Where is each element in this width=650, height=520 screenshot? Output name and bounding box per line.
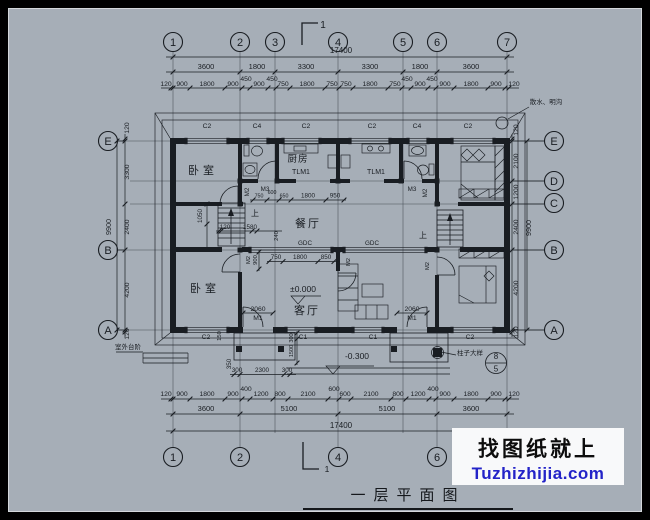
window-post	[406, 138, 409, 144]
detail-ref-sheet: 5	[494, 365, 499, 374]
window-post	[492, 327, 495, 333]
window-label: C4	[253, 123, 262, 130]
window-label: C2	[202, 334, 211, 341]
column-mark	[336, 328, 341, 333]
dim-label: 1050	[197, 209, 204, 224]
dim-label: M3	[408, 186, 417, 193]
column-mark	[238, 328, 243, 333]
grid-bubble-label: A	[104, 325, 112, 337]
dim-label: 4200	[513, 280, 520, 295]
note-apron-gutter: 散水、明沟	[530, 97, 563, 106]
dim-label: 2300	[255, 367, 270, 374]
dim-label: 900	[490, 81, 502, 88]
grid-bubble-label: E	[550, 136, 557, 148]
grid-bubble-label: 1	[170, 37, 176, 49]
dim-label: 450	[401, 76, 413, 83]
level-mark-zero: ±0.000	[290, 284, 316, 294]
dim-label: 900	[439, 81, 451, 88]
window-label: C1	[299, 334, 308, 341]
section-mark-label: 1	[325, 464, 330, 474]
sofa-short	[355, 305, 388, 319]
window-post	[226, 327, 229, 333]
dim-label: 120	[513, 326, 520, 338]
grid-bubble-label: 2	[237, 37, 243, 49]
dim-label: 900	[176, 81, 188, 88]
column-mark	[505, 139, 510, 144]
dim-label: 750	[389, 81, 401, 88]
column-mark	[238, 202, 243, 207]
stair-right	[437, 210, 463, 247]
watermark-slogan: 找图纸就上	[452, 433, 624, 463]
dim-label: 1800	[299, 81, 314, 88]
window-label: C2	[464, 123, 473, 130]
dim-label: 1200	[410, 391, 425, 398]
column-mark	[238, 179, 243, 184]
note-outdoor-steps: 室外台阶	[115, 342, 142, 351]
dim-label: 1800	[199, 391, 214, 398]
column-mark	[238, 139, 243, 144]
column-mark	[435, 179, 440, 184]
watermark: 找图纸就上 Tuzhizhijia.com	[452, 428, 624, 485]
column-mark	[336, 179, 341, 184]
window-label: C2	[466, 334, 475, 341]
column-mark	[435, 139, 440, 144]
window-label: C2	[203, 123, 212, 130]
column-mark	[171, 202, 176, 207]
appliance	[341, 155, 350, 168]
dim-label: 150	[217, 331, 223, 341]
dim-label: 4200	[124, 282, 131, 297]
window-post	[450, 138, 453, 144]
column-mark	[435, 328, 440, 333]
grid-bubble-label: 4	[335, 452, 341, 464]
window-label: C2	[302, 123, 311, 130]
dim-label: 9900	[524, 220, 533, 236]
room-living: 客厅	[294, 303, 320, 317]
column-mark	[505, 328, 510, 333]
dim-label: 900	[414, 81, 426, 88]
dim-label: 750	[255, 194, 264, 200]
section-mark-label: 1	[320, 20, 326, 31]
dim-label: 750	[277, 81, 289, 88]
stair-up-label: 上	[419, 231, 427, 240]
window-post	[246, 138, 249, 144]
dim-label: 3300	[362, 62, 379, 71]
window-label: C1	[369, 334, 378, 341]
dim-label: 900	[253, 255, 259, 265]
dim-label: 1800	[463, 391, 478, 398]
column-mark	[171, 248, 176, 253]
grid-bubble-label: 2	[237, 452, 243, 464]
dim-label: 600	[339, 391, 351, 398]
grid-bubble-label: A	[550, 325, 558, 337]
doors	[220, 161, 455, 327]
column-mark	[505, 248, 510, 253]
dim-label: GDC	[298, 240, 312, 247]
dim-label: 240	[274, 231, 280, 241]
grid-bubble-label: C	[550, 198, 558, 210]
dim-label: 300	[289, 333, 295, 342]
dim-label: 1580	[243, 224, 258, 231]
grid-bubble-label: 5	[400, 37, 406, 49]
grid-bubble-label: E	[104, 136, 111, 148]
dim-label: 800	[274, 391, 286, 398]
gutter-callout-circle	[496, 117, 508, 129]
window-post	[351, 327, 354, 333]
column-mark	[435, 248, 440, 253]
room-bedroom-1: 卧室	[188, 163, 218, 177]
dim-label: 950	[330, 193, 341, 200]
watermark-url: Tuzhizhijia.com	[452, 464, 624, 484]
grid-bubble-label: 6	[434, 452, 440, 464]
column-mark	[336, 248, 341, 253]
window-post	[281, 138, 284, 144]
dim-label: 120	[160, 391, 172, 398]
dim-label: 2100	[300, 391, 315, 398]
grid-bubble-label: B	[550, 245, 557, 257]
dim-label: M2	[422, 188, 429, 197]
dim-label: 120	[508, 391, 520, 398]
column-mark	[399, 139, 404, 144]
window-post	[226, 138, 229, 144]
dim-label: M2	[346, 258, 352, 266]
window-post	[184, 327, 187, 333]
dim-label: 1800	[199, 81, 214, 88]
column-mark	[435, 202, 440, 207]
grid-bubble-label: B	[104, 245, 111, 257]
dim-label: 1800	[463, 81, 478, 88]
column-mark	[399, 179, 404, 184]
column-mark	[275, 179, 280, 184]
dim-label: 120	[513, 124, 520, 136]
dim-label: 1800	[362, 81, 377, 88]
dim-label: 120	[124, 122, 131, 134]
dim-label: 750	[271, 254, 282, 261]
window-post	[426, 138, 429, 144]
coffee-table	[362, 284, 383, 297]
window-post	[342, 247, 345, 253]
window-post	[348, 138, 351, 144]
window-post	[492, 138, 495, 144]
window-post	[284, 327, 287, 333]
dim-label: 5100	[379, 404, 396, 413]
dim-label: M2	[246, 256, 252, 264]
window-post	[381, 327, 384, 333]
dim-label: 9900	[104, 219, 113, 235]
dim-label: 800	[392, 391, 404, 398]
dim-label: 1500	[289, 345, 295, 357]
window-post	[424, 247, 427, 253]
dim-label: 1200	[253, 391, 268, 398]
dim-label: 300	[232, 367, 243, 374]
dim-label: 900	[253, 81, 265, 88]
dim-label: 400	[240, 386, 252, 393]
appliance	[328, 155, 337, 168]
dim-label: 450	[426, 76, 438, 83]
window-post	[450, 327, 453, 333]
dim-total-top: 17400	[330, 46, 353, 55]
window-post	[266, 138, 269, 144]
window-post	[248, 247, 251, 253]
dim-label: 3600	[463, 404, 480, 413]
detail-column	[433, 348, 442, 357]
grid-bubble-label: 3	[272, 37, 278, 49]
drawing-title: 一层平面图	[303, 484, 513, 510]
grid-bubble-label: D	[550, 176, 558, 188]
level-symbol-minus	[326, 366, 374, 374]
bed-bottom-right	[459, 266, 496, 303]
dim-label: TLM1	[292, 169, 310, 176]
grid-bubble-label: 6	[434, 37, 440, 49]
dim-label: 600	[328, 386, 340, 393]
dim-label: 1800	[412, 62, 429, 71]
dim-label: 2100	[363, 391, 378, 398]
kitchen-counter	[362, 144, 390, 153]
room-kitchen: 厨房	[287, 153, 308, 165]
dim-label: 1800	[249, 62, 266, 71]
dim-label: 2400	[513, 219, 520, 234]
stair-up-label: 上	[251, 209, 259, 218]
dim-label: 120	[508, 81, 520, 88]
dim-label: 3600	[198, 62, 215, 71]
dim-total-bottom: 17400	[330, 421, 353, 430]
column-mark	[505, 202, 510, 207]
window-post	[314, 327, 317, 333]
room-bedroom-3: 卧室	[190, 281, 220, 295]
dim-label: 300	[282, 367, 293, 374]
toilet-1	[244, 145, 249, 156]
column-mark	[171, 328, 176, 333]
dim-label: 350	[226, 358, 233, 369]
dim-label: 450	[240, 76, 252, 83]
dim-label: 1800	[301, 193, 316, 200]
dim-label: 2060	[404, 306, 419, 313]
dim-label: 120	[160, 81, 172, 88]
dim-label: 2400	[124, 219, 131, 234]
column-mark	[336, 139, 341, 144]
dim-label: 600	[268, 190, 277, 196]
blueprint-page: 12345671246EBAEDCBA174003600180033003300…	[0, 0, 650, 520]
window-post	[330, 247, 333, 253]
dim-label: TLM1	[367, 169, 385, 176]
column-mark	[275, 139, 280, 144]
dim-label: 3600	[463, 62, 480, 71]
grid-bubble-label: 7	[504, 37, 510, 49]
dim-label: 650	[280, 194, 289, 200]
dim-label: 750	[340, 81, 352, 88]
level-mark-minus: -0.300	[345, 351, 369, 361]
window-label: C2	[368, 123, 377, 130]
level-symbol-zero	[291, 296, 321, 304]
dim-label: M2	[244, 187, 251, 196]
bed-top-right	[461, 146, 495, 200]
note-column-detail: 柱子大样	[457, 348, 484, 357]
window-post	[388, 138, 391, 144]
dim-label: 5100	[281, 404, 298, 413]
toilet-2	[429, 164, 434, 175]
dim-label: 120	[124, 328, 131, 340]
dim-label: 3300	[298, 62, 315, 71]
walls	[170, 138, 510, 333]
dim-label: 3600	[198, 404, 215, 413]
dim-label: 900	[176, 391, 188, 398]
dim-label: 900	[439, 391, 451, 398]
dim-label: M1	[407, 315, 417, 322]
dim-label: 900	[227, 81, 239, 88]
dim-label: 900	[490, 391, 502, 398]
room-dining: 餐厅	[295, 216, 321, 230]
window-post	[318, 138, 321, 144]
dim-label: 3300	[124, 164, 131, 179]
dim-label: 750	[326, 81, 338, 88]
dim-label: 1800	[293, 254, 308, 261]
dim-label: 2100	[513, 153, 520, 168]
window-label: C4	[413, 123, 422, 130]
dim-label: GDC	[365, 240, 379, 247]
dim-label: 2060	[250, 306, 265, 313]
dim-label: 450	[266, 76, 278, 83]
kitchen-counter	[284, 144, 318, 153]
dim-label: 1200	[513, 184, 520, 199]
sofa-long	[338, 264, 358, 311]
column-mark	[238, 248, 243, 253]
dim-label: 400	[427, 386, 439, 393]
dim-label: M2	[425, 262, 431, 270]
grid-bubble-label: 1	[170, 452, 176, 464]
dim-label: 900	[227, 391, 239, 398]
window-post	[184, 138, 187, 144]
detail-ref-number: 8	[494, 352, 499, 361]
dim-label: 850	[321, 254, 332, 261]
dim-label: 120	[220, 224, 231, 231]
column-mark	[171, 139, 176, 144]
dim-label: M1	[253, 315, 263, 322]
